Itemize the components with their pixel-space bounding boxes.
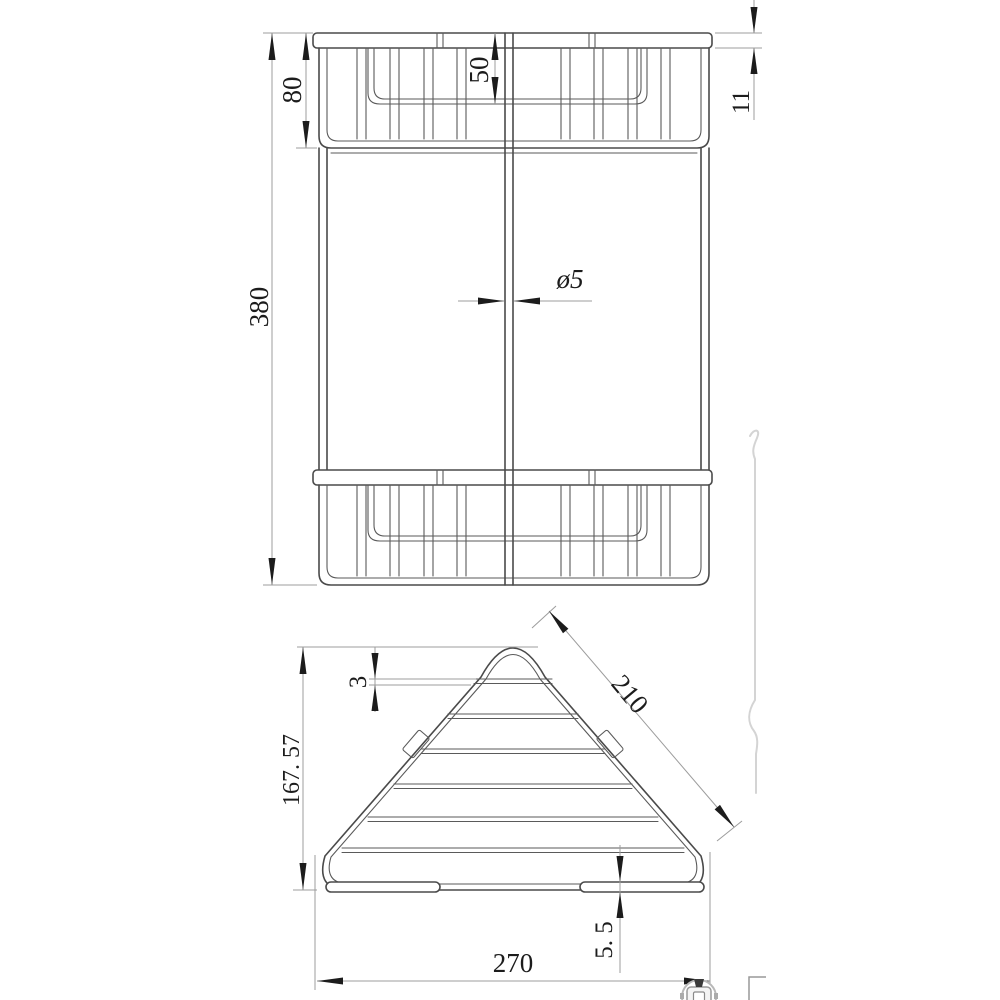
dim-wire-diameter: ø5 xyxy=(556,264,584,294)
front-view xyxy=(313,33,712,585)
dim-overall-height: 380 xyxy=(244,287,274,328)
right-foot-wire xyxy=(580,882,704,892)
dim-basket-inner-depth: 50 xyxy=(464,57,494,84)
border-corner-mark xyxy=(749,977,766,1000)
technical-drawing-canvas: 380 80 50 11 ø5 167. 57 3 210 270 5. 5 xyxy=(0,0,1000,1000)
dim-side-length: 210 xyxy=(605,669,654,719)
side-rails xyxy=(319,148,709,470)
dim-rim-band-height: 11 xyxy=(728,90,755,114)
dim-tier-height: 80 xyxy=(277,77,307,104)
dim-top-wire-diameter: 3 xyxy=(345,676,372,689)
left-clip xyxy=(402,730,430,759)
lower-basket-lip xyxy=(368,485,647,541)
left-foot-wire xyxy=(326,882,440,892)
center-post xyxy=(505,33,513,585)
dim-foot-wire-diameter: 5. 5 xyxy=(591,921,618,959)
upper-basket-shell xyxy=(319,48,709,148)
upper-basket-lip xyxy=(368,48,647,104)
technical-drawing: 380 80 50 11 ø5 167. 57 3 210 270 5. 5 xyxy=(0,0,1000,1000)
dim-front-width: 270 xyxy=(493,948,534,978)
dim-plan-depth: 167. 57 xyxy=(279,734,305,806)
right-clip xyxy=(596,730,624,759)
plan-outline-outer xyxy=(323,648,704,890)
extras xyxy=(680,431,766,1000)
ghost-profile-line xyxy=(749,431,758,793)
lower-basket-shell xyxy=(319,485,709,585)
